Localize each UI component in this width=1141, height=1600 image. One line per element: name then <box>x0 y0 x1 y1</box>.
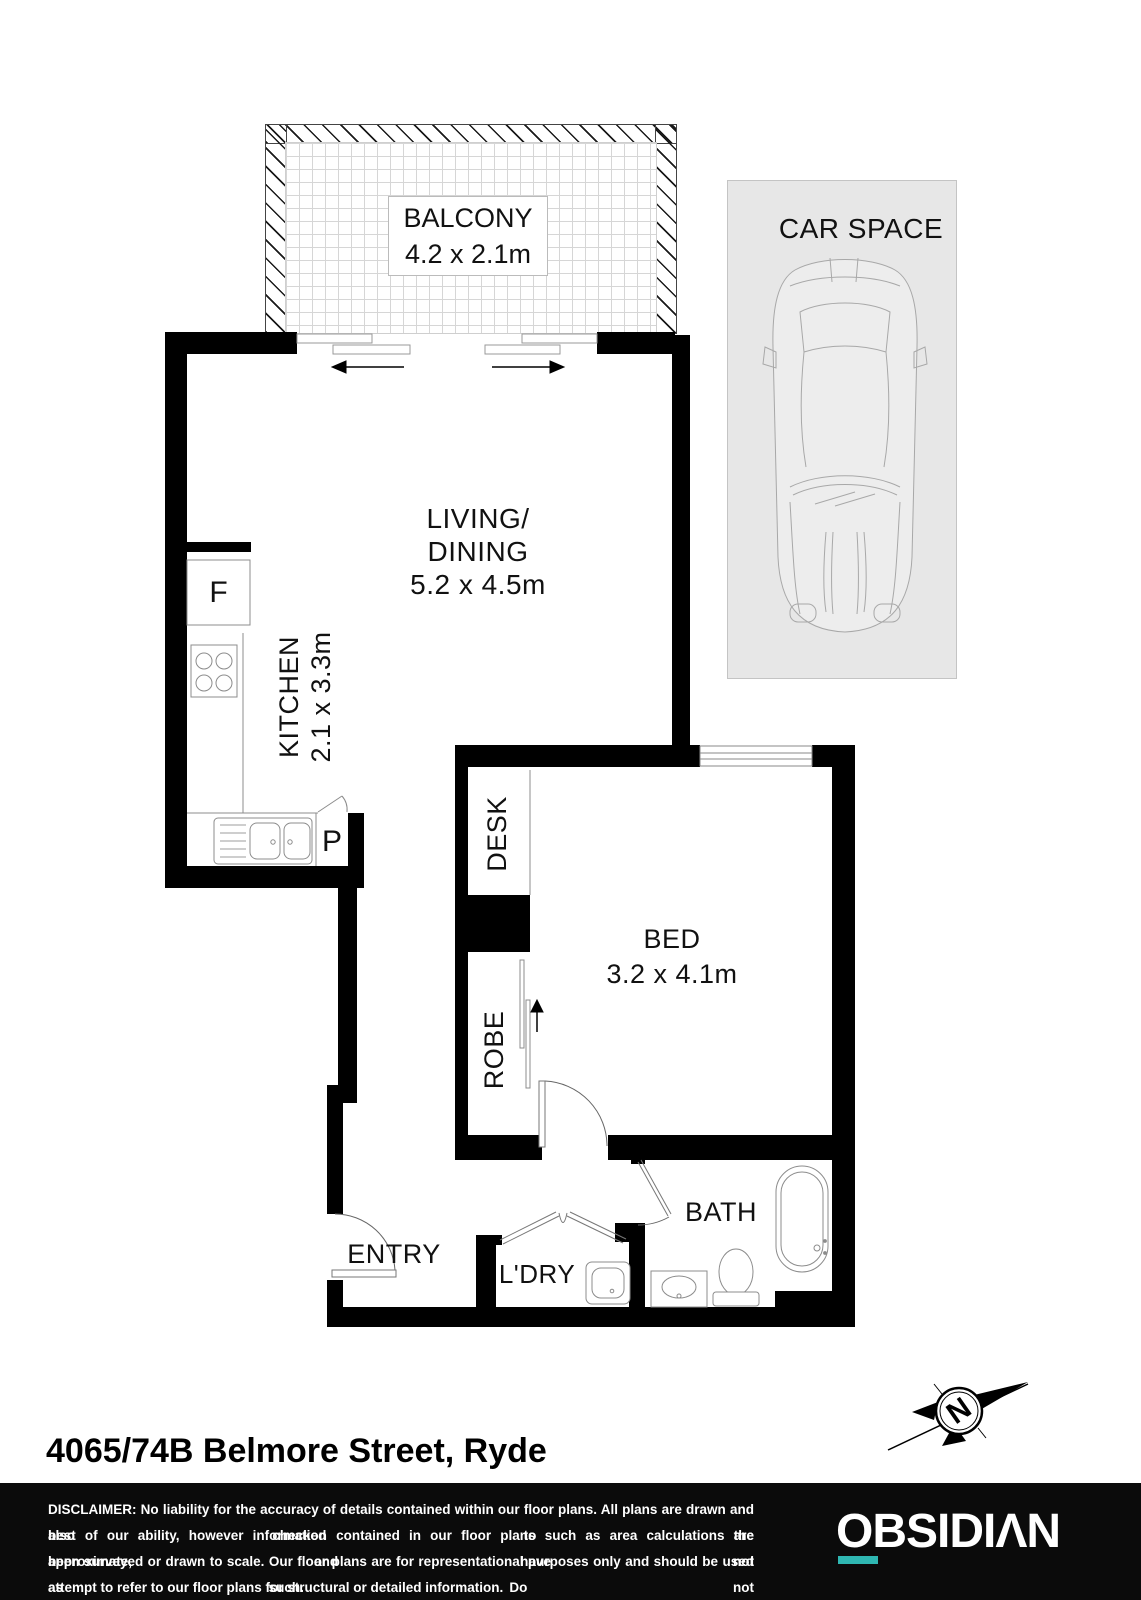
wall-laundry-right <box>629 1223 645 1307</box>
wall-robe-left <box>455 952 468 1135</box>
robe-slider <box>520 960 530 1088</box>
balcony-dims: 4.2 x 2.1m <box>405 236 531 272</box>
bathtub-icon <box>776 1166 828 1272</box>
wall-bath-bottom-step <box>775 1291 832 1307</box>
sliding-door-panels <box>297 334 597 354</box>
car-space-label: CAR SPACE <box>761 212 961 245</box>
obsidian-logo-underline <box>838 1556 878 1564</box>
robe-slide-arrow-icon <box>531 1000 543 1032</box>
slide-arrow-left-icon <box>332 361 404 373</box>
fridge-marker: F <box>187 560 250 625</box>
wall-laundry-right-hinge <box>615 1223 631 1242</box>
kitchen-dims: 2.1 x 3.3m <box>305 631 337 762</box>
wall-kitchen-stub <box>187 542 251 552</box>
wall-desk-robe-block <box>455 895 530 952</box>
wall-kitchen-bottom <box>165 866 364 888</box>
bedroom-window <box>700 746 812 766</box>
robe-label: ROBE <box>477 975 511 1125</box>
bath-label: BATH <box>661 1196 781 1229</box>
balcony-hatch-left <box>265 124 287 334</box>
wall-living-right <box>672 335 690 767</box>
vanity-basin-icon <box>651 1271 707 1307</box>
car-space-area <box>727 180 957 679</box>
wall-right <box>832 745 855 1327</box>
robe-text: ROBE <box>478 1011 510 1090</box>
wall-pantry-right <box>348 813 364 873</box>
wall-top-right <box>597 332 675 354</box>
floor-plan-page: BALCONY 4.2 x 2.1m CAR SPACE <box>0 0 1141 1600</box>
disclaimer-line: attempt to refer to our floor plans for … <box>48 1575 754 1600</box>
wall-desk-left <box>455 767 468 895</box>
laundry-label: L'DRY <box>487 1258 587 1291</box>
desk-text: DESK <box>481 796 513 872</box>
wall-hall-lower <box>327 1103 343 1214</box>
wall-hall-upper <box>338 886 357 1085</box>
bed-name: BED <box>572 922 772 957</box>
slide-arrow-right-icon <box>492 361 564 373</box>
kitchen-label: KITCHEN 2.1 x 3.3m <box>265 567 345 827</box>
balcony-hatch-right <box>655 124 677 334</box>
balcony-label-box: BALCONY 4.2 x 2.1m <box>388 196 548 276</box>
desk-label: DESK <box>480 769 514 899</box>
kitchen-name: KITCHEN <box>273 636 305 758</box>
living-line1: LIVING/ <box>388 502 568 535</box>
living-dims: 5.2 x 4.5m <box>388 568 568 601</box>
balcony-label: BALCONY <box>403 200 532 236</box>
wall-bottom <box>327 1307 855 1327</box>
wall-laundry-left-hinge <box>476 1235 502 1245</box>
stove-icon <box>191 645 237 697</box>
toilet-icon <box>713 1249 759 1306</box>
balcony-hatch-top <box>265 124 677 144</box>
obsidian-logo: OBSIDIΛN <box>836 1504 1060 1559</box>
wall-bath-door-stub <box>631 1150 645 1164</box>
wall-hall-step <box>327 1085 357 1103</box>
wall-left <box>165 332 187 888</box>
living-line2: DINING <box>388 535 568 568</box>
pantry-marker: P <box>315 822 349 862</box>
wall-robe-bottom <box>455 1135 542 1160</box>
living-dining-label: LIVING/ DINING 5.2 x 4.5m <box>388 502 568 601</box>
wall-entry-stub <box>327 1280 343 1310</box>
compass-north-letter: N <box>941 1391 978 1430</box>
entry-label: ENTRY <box>334 1238 454 1271</box>
laundry-tub-icon <box>586 1262 630 1304</box>
bed-dims: 3.2 x 4.1m <box>572 957 772 992</box>
bedroom-door <box>539 1081 607 1147</box>
north-compass-icon: N <box>888 1382 1028 1450</box>
wall-bed-top <box>455 745 700 767</box>
laundry-bifold-doors <box>500 1212 626 1244</box>
wall-bed-top-corner <box>812 745 855 767</box>
bed-label: BED 3.2 x 4.1m <box>572 922 772 992</box>
plan-address: 4065/74B Belmore Street, Ryde <box>46 1432 547 1471</box>
